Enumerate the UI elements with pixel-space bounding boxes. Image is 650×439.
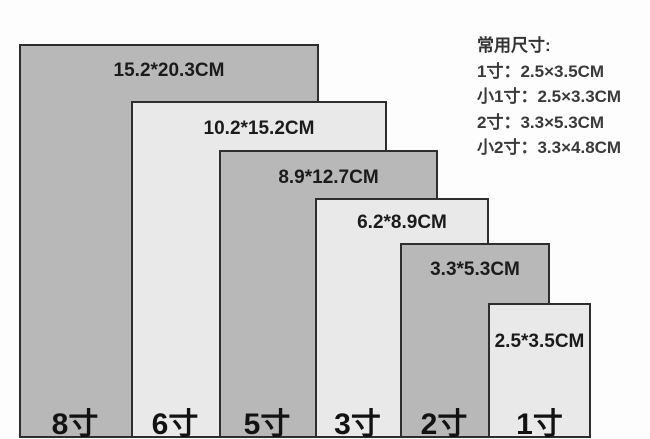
photo-size-chart: 15.2*20.3CM 10.2*15.2CM 8.9*12.7CM 6.2*8…	[0, 0, 650, 439]
legend-item-2cun: 2寸：3.3×5.3CM	[477, 110, 621, 136]
legend-title: 常用尺寸:	[477, 33, 621, 59]
dimension-label-6cun: 10.2*15.2CM	[133, 118, 385, 140]
dimension-label-3cun: 6.2*8.9CM	[317, 212, 487, 234]
dimension-label-2cun: 3.3*5.3CM	[402, 259, 548, 281]
legend-item-1cun: 1寸：2.5×3.5CM	[477, 59, 621, 85]
legend-item-small-2cun: 小2寸：3.3×4.8CM	[477, 135, 621, 161]
dimension-label-1cun: 2.5*3.5CM	[490, 331, 589, 353]
size-name-5cun: 5寸	[219, 399, 315, 439]
size-name-2cun: 2寸	[400, 399, 488, 439]
size-name-1cun: 1寸	[488, 399, 591, 439]
dimension-label-8cun: 15.2*20.3CM	[21, 60, 317, 82]
size-name-8cun: 8寸	[19, 399, 131, 439]
legend-item-small-1cun: 小1寸：2.5×3.3CM	[477, 84, 621, 110]
size-name-3cun: 3寸	[315, 399, 400, 439]
size-name-6cun: 6寸	[131, 399, 219, 439]
common-sizes-legend: 常用尺寸: 1寸：2.5×3.5CM 小1寸：2.5×3.3CM 2寸：3.3×…	[477, 33, 621, 161]
dimension-label-5cun: 8.9*12.7CM	[221, 167, 436, 189]
